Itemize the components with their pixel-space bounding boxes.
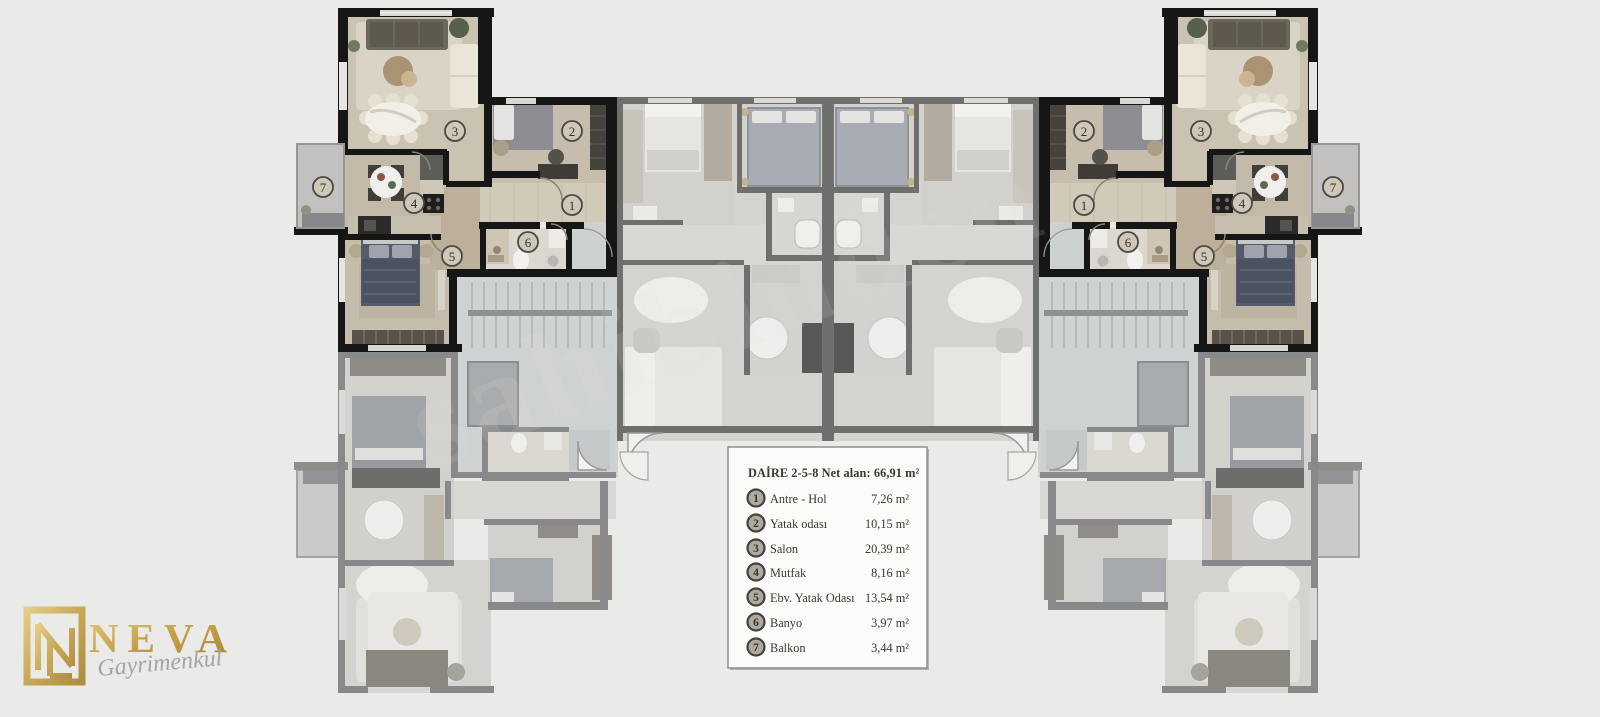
- svg-text:Ebv. Yatak Odası: Ebv. Yatak Odası: [770, 591, 855, 605]
- svg-text:10,15 m²: 10,15 m²: [865, 517, 909, 531]
- svg-text:13,54 m²: 13,54 m²: [865, 591, 909, 605]
- svg-text:2: 2: [753, 518, 759, 530]
- svg-text:5: 5: [753, 592, 759, 604]
- svg-text:8,16 m²: 8,16 m²: [871, 566, 909, 580]
- svg-text:20,39 m²: 20,39 m²: [865, 542, 909, 556]
- svg-text:3,44 m²: 3,44 m²: [871, 641, 909, 655]
- svg-text:5: 5: [449, 249, 456, 264]
- svg-text:7: 7: [753, 642, 759, 654]
- svg-text:3: 3: [452, 124, 459, 139]
- svg-text:1: 1: [1081, 198, 1088, 213]
- svg-text:Banyo: Banyo: [770, 616, 802, 630]
- svg-text:7: 7: [320, 180, 327, 195]
- svg-text:2: 2: [569, 124, 576, 139]
- svg-text:Yatak odası: Yatak odası: [770, 517, 828, 531]
- svg-text:1: 1: [569, 198, 576, 213]
- svg-text:5: 5: [1201, 249, 1208, 264]
- svg-text:3,97 m²: 3,97 m²: [871, 616, 909, 630]
- svg-text:DAİRE 2-5-8 Net alan: 66,91 m²: DAİRE 2-5-8 Net alan: 66,91 m²: [748, 466, 920, 480]
- svg-text:7: 7: [1330, 180, 1337, 195]
- svg-text:Mutfak: Mutfak: [770, 566, 807, 580]
- svg-text:3: 3: [753, 543, 759, 555]
- svg-text:Balkon: Balkon: [770, 641, 806, 655]
- svg-text:7,26 m²: 7,26 m²: [871, 492, 909, 506]
- svg-text:4: 4: [753, 567, 759, 579]
- svg-text:Salon: Salon: [770, 542, 798, 556]
- svg-text:3: 3: [1198, 124, 1205, 139]
- svg-text:Antre - Hol: Antre - Hol: [770, 492, 827, 506]
- svg-text:4: 4: [1239, 196, 1246, 211]
- svg-text:2: 2: [1081, 124, 1088, 139]
- svg-text:6: 6: [525, 235, 532, 250]
- svg-text:6: 6: [753, 617, 759, 629]
- svg-text:6: 6: [1125, 235, 1132, 250]
- svg-text:1: 1: [753, 493, 759, 505]
- svg-text:4: 4: [411, 196, 418, 211]
